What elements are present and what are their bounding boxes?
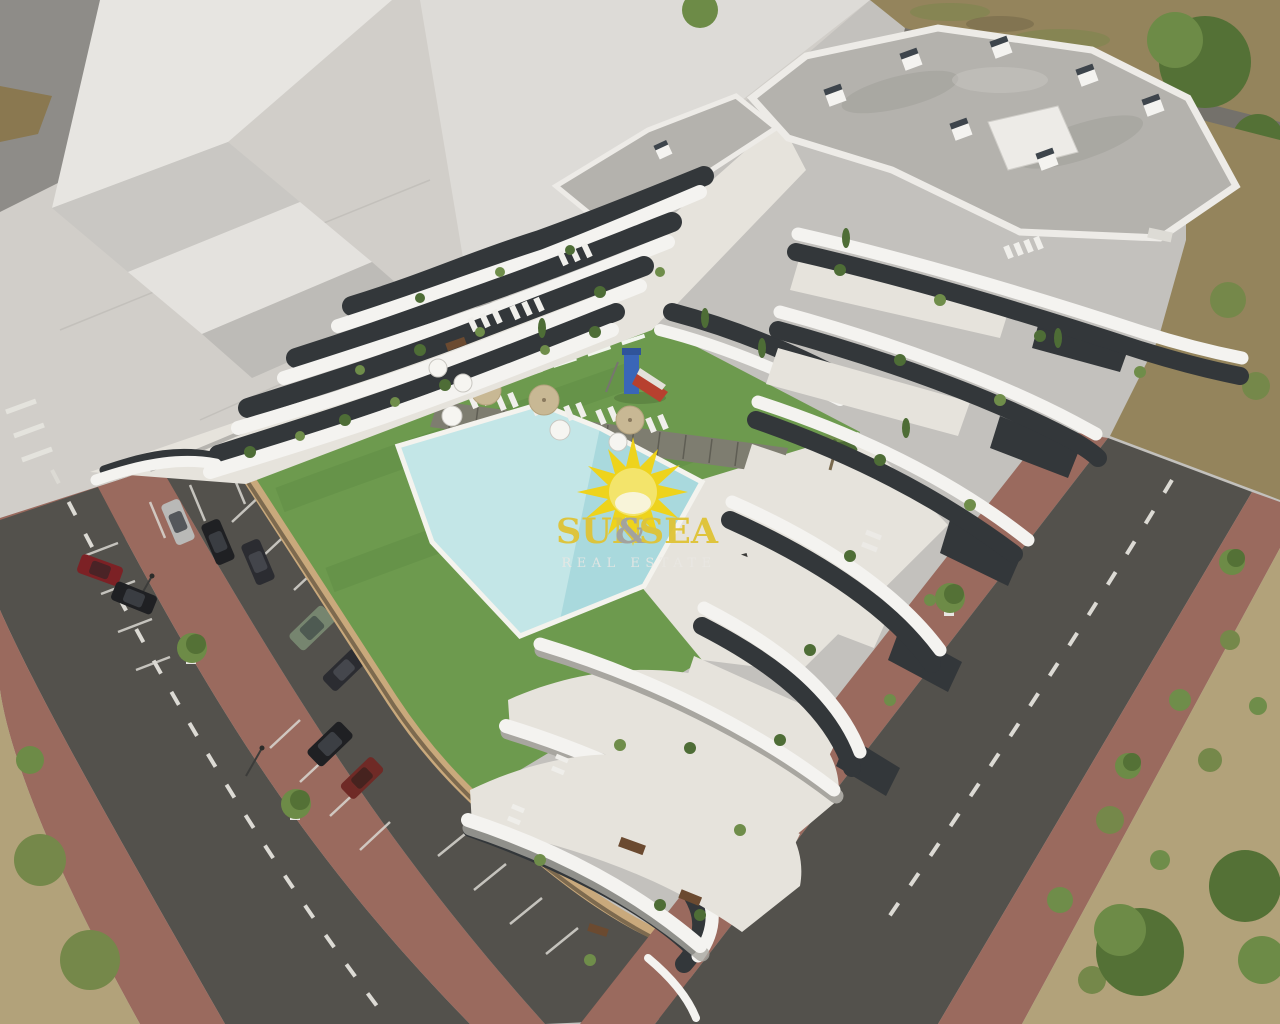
plant [934, 294, 946, 306]
cypress [1054, 328, 1062, 348]
tree-canopy [186, 634, 206, 654]
plant [339, 414, 351, 426]
plant [534, 854, 546, 866]
scrub-bush [1047, 887, 1073, 913]
brand-tagline: REAL ESTATE [561, 556, 716, 571]
render-image: SUN & SEA REAL ESTATE [0, 0, 1280, 1024]
plant [964, 499, 976, 511]
plant [295, 431, 305, 441]
tree-canopy [944, 584, 964, 604]
plant [884, 694, 896, 706]
brand-word-sea: SEA [639, 511, 719, 552]
sidewalk-tree [1219, 549, 1245, 575]
parasol [529, 385, 559, 415]
tree-canopy [1227, 549, 1245, 567]
plant [584, 954, 596, 966]
plant [614, 739, 626, 751]
dirt-shade [966, 16, 1034, 32]
plant [355, 365, 365, 375]
scene-canvas: SUN & SEA REAL ESTATE [0, 0, 1280, 1024]
plant [654, 899, 666, 911]
plant [439, 379, 451, 391]
plant [874, 454, 886, 466]
parasol-pole [628, 418, 632, 422]
plant [390, 397, 400, 407]
white-umbrella [429, 359, 447, 377]
plant [1034, 330, 1046, 342]
roof-texture [952, 67, 1048, 93]
white-umbrella [442, 406, 462, 426]
tree-canopy [1209, 850, 1280, 922]
cypress [758, 338, 766, 358]
white-umbrella [550, 420, 570, 440]
plant [244, 446, 256, 458]
tree-canopy [1123, 753, 1141, 771]
playground-roof [622, 348, 641, 355]
plant [994, 394, 1006, 406]
scrub-bush [1210, 282, 1246, 318]
plant [655, 267, 665, 277]
scrub-bush [1096, 806, 1124, 834]
scrub-bush [1220, 630, 1240, 650]
lamp-head [260, 746, 265, 751]
plant [589, 326, 601, 338]
cypress [701, 308, 709, 328]
lamp-head [150, 574, 155, 579]
tree-canopy [290, 790, 310, 810]
plant [495, 267, 505, 277]
plant [684, 742, 696, 754]
scrub-bush [1198, 748, 1222, 772]
plant [774, 734, 786, 746]
plant [844, 550, 856, 562]
plant [540, 345, 550, 355]
plant [834, 264, 846, 276]
scrub-bush [1249, 697, 1267, 715]
scrub-bush [14, 834, 66, 886]
plant [594, 286, 606, 298]
white-umbrella [454, 374, 472, 392]
cypress [538, 318, 546, 338]
scrub-bush [1150, 850, 1170, 870]
tree-canopy [1094, 904, 1146, 956]
plant [415, 293, 425, 303]
parasol [616, 406, 644, 434]
plant [694, 909, 706, 921]
scrub-bush [1169, 689, 1191, 711]
sidewalk-tree [1115, 753, 1141, 779]
plant [475, 327, 485, 337]
brand-wordmark: SUN & SEA [556, 511, 719, 552]
scrub-bush [60, 930, 120, 990]
cypress [842, 228, 850, 248]
scrub-bush [16, 746, 44, 774]
white-umbrella [609, 433, 627, 451]
playground-tower [624, 352, 639, 394]
plant [414, 344, 426, 356]
tree-canopy [1147, 12, 1203, 68]
plant [894, 354, 906, 366]
cypress [902, 418, 910, 438]
plant [565, 245, 575, 255]
plant [924, 594, 936, 606]
plant [804, 644, 816, 656]
plant [734, 824, 746, 836]
plant [1134, 366, 1146, 378]
parasol-pole [542, 398, 546, 402]
